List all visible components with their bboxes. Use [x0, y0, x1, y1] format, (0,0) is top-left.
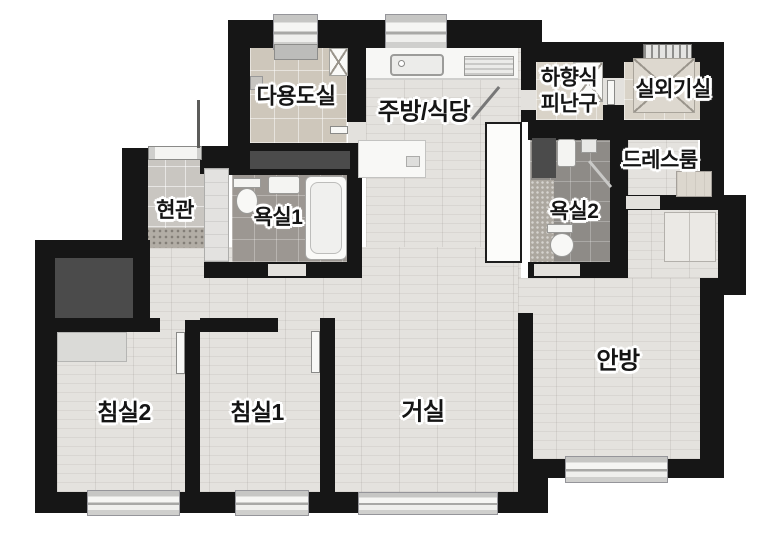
kitchen-faucet: [398, 60, 405, 67]
toilet-bowl: [550, 233, 574, 257]
door-leaf: [330, 126, 348, 134]
utility-box: [329, 48, 348, 76]
room-label-hatch: 하향식 피난구: [541, 65, 597, 116]
bathtub-basin: [310, 182, 342, 254]
door-leaf: [607, 80, 615, 105]
toilet: [233, 178, 261, 188]
door-threshold: [626, 196, 660, 209]
wall-segment: [200, 318, 278, 332]
wall-segment: [122, 148, 148, 260]
room-label-outdoor-unit: 실외기실: [635, 77, 710, 103]
wall-segment: [185, 320, 200, 512]
room-label-bedroom1: 침실1: [230, 398, 284, 426]
wall-segment: [148, 318, 160, 332]
wall-segment: [347, 48, 366, 122]
door-threshold: [521, 90, 536, 110]
room-label-entrance: 현관: [156, 198, 194, 224]
entrance-door: [148, 146, 202, 160]
louver-vent: [643, 44, 692, 59]
washbasin: [557, 139, 576, 167]
window: [565, 456, 668, 483]
duct-above-bath1: [250, 151, 350, 169]
wall-segment: [521, 42, 536, 90]
door-threshold: [534, 264, 580, 276]
cooktop: [464, 56, 514, 76]
room-label-utility: 다용도실: [257, 84, 336, 111]
washbasin: [268, 176, 300, 194]
room-label-living: 거실: [401, 397, 444, 426]
room-label-master: 안방: [596, 346, 639, 375]
floor-plan: 다용도실 주방/식당 하향식 피난구 실외기실 드레스룸 현관 욕실1 욕실2 …: [0, 0, 760, 546]
dressroom-wardrobe: [676, 171, 712, 197]
island-sink: [406, 156, 420, 167]
shoe-cabinet: [204, 168, 229, 262]
elevator-shaft-box: [55, 258, 133, 318]
wall-segment: [518, 313, 533, 513]
room-label-kitchen: 주방/식당: [378, 97, 471, 126]
wall-segment: [718, 195, 746, 295]
entrance-doormat: [145, 228, 204, 248]
master-closet-divider: [689, 213, 690, 261]
window: [385, 14, 447, 50]
master-closet: [664, 212, 716, 262]
door-leaf: [176, 332, 185, 374]
room-label-bath2: 욕실2: [550, 199, 599, 225]
duct-beside-bath2: [532, 138, 556, 178]
wall-segment: [603, 50, 624, 78]
door-leaf: [311, 331, 320, 373]
room-label-dressroom: 드레스룸: [622, 148, 697, 174]
room-label-bath1: 욕실1: [254, 205, 303, 231]
boundary-line: [197, 100, 200, 148]
wall-segment: [320, 318, 335, 512]
washing-machine: [274, 44, 318, 60]
window: [358, 492, 498, 515]
refrigerator-cabinet: [485, 122, 522, 263]
room-label-bedroom2: 침실2: [97, 398, 151, 426]
bedroom2-closet: [57, 332, 127, 362]
wall-segment: [528, 120, 724, 140]
door-threshold: [268, 264, 306, 276]
mirror-cabinet: [581, 139, 597, 153]
toilet: [547, 224, 573, 233]
window: [87, 490, 180, 516]
window: [235, 490, 309, 516]
wall-segment: [700, 278, 724, 478]
